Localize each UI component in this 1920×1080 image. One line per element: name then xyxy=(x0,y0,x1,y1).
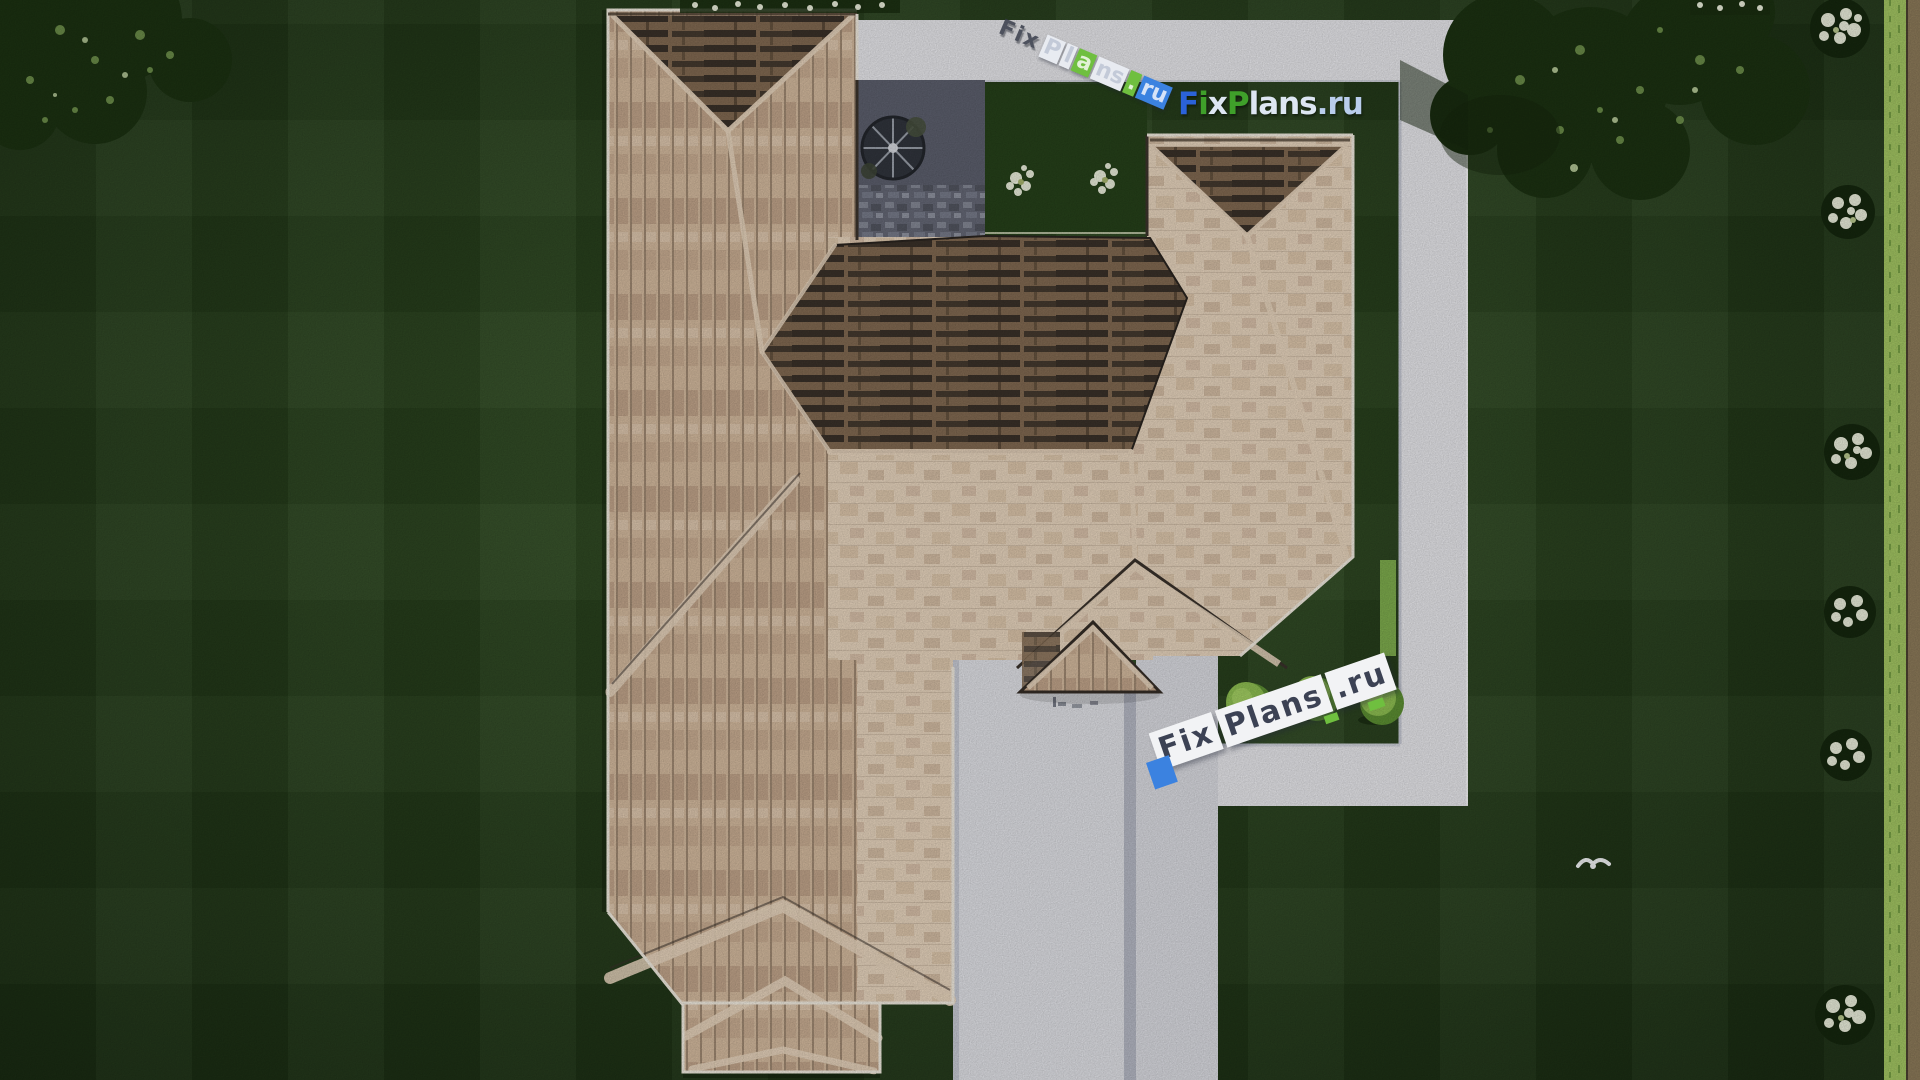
aerial-site-render: FixPlans.ru FixPlans.ru FixPlans.ru xyxy=(0,0,1920,1080)
grain-overlay xyxy=(0,0,1920,1080)
scene-graphics xyxy=(0,0,1920,1080)
